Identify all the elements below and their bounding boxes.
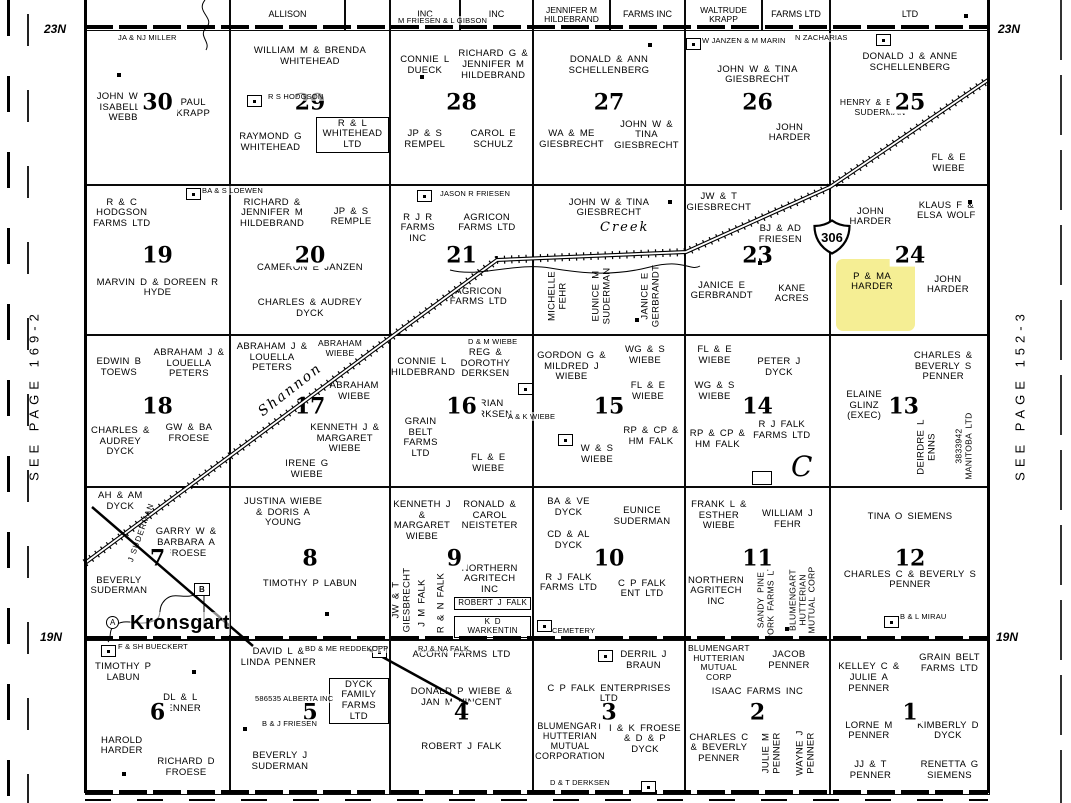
owner-callout-label: D & M WIEBE [468,337,517,346]
parcel-owner-label: JACOB PENNER [758,650,821,671]
parcel-owner-label: ABRAHAM WIEBE [310,339,370,358]
parcel-owner-label: DONALD & ANN SCHELLENBERG [546,55,672,76]
building-marker [101,645,116,657]
building-marker [785,627,789,631]
parcel-owner-label: EUNICE SUDERMAN [606,506,678,527]
parcel-owner-label: JANICE E GERBRANDT [640,257,661,335]
parcel-owner-label: NORTHERN AGRITECH INC [686,576,746,608]
parcel-owner-label: I & K FROESE & D & P DYCK [609,724,681,756]
parcel-owner-label: JANICE E GERBRANDT [686,281,758,302]
parcel-owner-label: LORNE M PENNER [831,721,907,742]
section-4: ACORN FARMS LTDDONALD P WIEBE & JAN M VI… [390,640,533,795]
owner-callout-label: D & T DERKSEN [550,778,610,787]
parcel-owner-label: R J FALK FARMS LTD [749,420,815,441]
parcel-owner-label: IRENE G WIEBE [272,459,342,480]
section-number: 10 [589,548,630,570]
parcel-owner-label: R & N FALK [436,568,447,638]
building-marker [686,38,701,50]
owner-callout-label: F & SH BUECKERT [118,642,188,651]
building-marker [558,434,573,446]
owner-callout-label: R S HODGSON [268,92,324,101]
parcel-owner-label: JOHN HARDER [758,123,822,144]
section-number: 13 [883,395,924,417]
parcel-owner-label: 3833942 MANITOBA LTD [954,410,973,482]
parcel-owner-label: TINA O SIEMENS [844,512,977,523]
building-marker [122,772,126,776]
parcel-owner-label: ABRAHAM WIEBE [323,381,386,402]
highway-number: 306 [812,230,852,245]
page-ref-right: SEE PAGE 152-3 [1013,309,1028,481]
township-line-19n [85,636,988,640]
section-19: R & C HODGSON FARMS LTDMARVIN D & DOREEN… [85,185,230,335]
section-13: ELAINE GLINZ (EXEC)CHARLES & BEVERLY S P… [830,335,990,487]
section-17: ABRAHAM J & LOUELLA PETERSABRAHAM WIEBEA… [230,335,390,487]
section-27: DONALD & ANN SCHELLENBERGWA & ME GIESBRE… [533,30,685,185]
building-marker [641,781,656,793]
owner-callout-label: BD & ME REDDEKOPP [305,644,388,653]
building-marker [537,620,552,632]
section-24: JOHN HARDERKLAUS F & ELSA WOLFP & MA HAR… [830,185,990,335]
parcel-owner-label: WG & S WIEBE [612,345,678,366]
owner-callout-label: M FRIESEN & L GIBSON [398,16,487,25]
parcel-owner-label: PETER J DYCK [743,357,815,378]
township-marker: 19N [40,630,62,644]
map-frame-left [84,0,87,793]
parcel-owner-label: RICHARD D FROESE [149,757,223,778]
parcel-owner-label: W & S WIEBE [573,444,621,465]
plat-map-page: JOHN W & ISABELLA WEBBPAUL KRAPP30WILLIA… [0,0,1071,803]
building-marker [325,612,329,616]
section-1: KELLEY C & JULIE A PENNERGRAIN BELT FARM… [830,640,990,795]
parcel-owner-label: MARVIN D & DOREEN R HYDE [92,278,224,299]
margin-road-dashes-bottom [85,799,988,801]
parcel-owner-label: R & C HODGSON FARMS LTD [86,198,158,230]
parcel-owner-label: KENNETH J & MARGARET WIEBE [391,500,453,543]
parcel-owner-label: ABRAHAM J & LOUELLA PETERS [152,348,226,380]
owner-callout-label: B & L MIRAU [900,612,947,621]
parcel-owner-label: WAYNE J PENNER [795,718,816,788]
section-11: FRANK L & ESTHER WIEBEWILLIAM J FEHRNORT… [685,487,830,640]
parcel-owner-label: KIMBERLY D DYCK [910,721,986,742]
parcel-owner-label: WA & ME GIESBRECHT [534,129,609,150]
section-number: 16 [441,395,482,417]
section-number: 14 [737,395,778,417]
parcel-owner-label: CONNIE L DUECK [394,55,456,76]
parcel-owner-label: GORDON G & MILDRED J WIEBE [534,351,609,383]
section-5: DAVID L & LINDA PENNERDYCK FAMILY FARMS … [230,640,390,795]
section-16: CONNIE L HILDEBRANDREG & DOROTHY DERKSEN… [390,335,533,487]
parcel-owner-label: P & MA HARDER [837,272,907,293]
parcel-owner-label: WG & S WIEBE [686,381,743,402]
building-marker [192,670,196,674]
parcel-owner-label: MICHELLE FEHR [547,260,568,332]
building-marker [420,75,424,79]
section-25: DONALD J & ANNE SCHELLENBERGHENRY & EUNI… [830,30,990,185]
section-30: JOHN W & ISABELLA WEBBPAUL KRAPP30 [85,30,230,185]
parcel-owner-label: KELLEY C & JULIE A PENNER [831,662,907,694]
parcel-owner-label: JUSTINA WIEBE & DORIS A YOUNG [244,497,323,529]
parcel-owner-label: EDWIN B TOEWS [86,357,152,378]
parcel-owner-label: CONNIE L HILDEBRAND [391,357,453,378]
parcel-owner-label: BEVERLY J SUDERMAN [237,751,322,772]
highway-306-shield: 306 [812,219,852,256]
building-marker [668,200,672,204]
section-number: 7 [145,548,170,570]
section-9: KENNETH J & MARGARET WIEBERONALD & CAROL… [390,487,533,640]
map-frame-right [987,0,990,793]
section-23: JW & T GIESBRECHTBJ & AD FRIESENJANICE E… [685,185,830,335]
section-number: 4 [449,701,474,723]
parcel-owner-label: FL & E WIEBE [913,153,984,174]
township-marker: 23N [998,22,1020,36]
parcel-owner-label: CHARLES & AUDREY DYCK [86,426,155,458]
section-number: 24 [890,244,931,266]
parcel-owner-label: J M FALK [418,568,429,638]
owner-callout-label: 586535 ALBERTA INC [255,694,333,703]
section-number: 30 [137,91,178,113]
parcel-owner-label: R J R FARMS INC [391,213,445,245]
building-marker [758,261,762,265]
parcel-owner-label: ROBERT J FALK [454,597,531,610]
section-number: 6 [145,701,170,723]
section-3: DERRIL J BRAUNC P FALK ENTERPRISES LTDBL… [533,640,685,795]
parcel-owner-label: DYCK FAMILY FARMS LTD [329,678,389,725]
section-18: EDWIN B TOEWSABRAHAM J & LOUELLA PETERSC… [85,335,230,487]
highlighted-parcel [836,259,915,332]
parcel-owner-label: RICHARD & JENNIFER M HILDEBRAND [231,198,313,230]
town-name-label: Kronsgart [130,612,230,635]
parcel-owner-label: WILLIAM M & BRENDA WHITEHEAD [239,46,381,67]
section-number: 12 [890,548,931,570]
parcel-owner-label: JOHN W & TINA GIESBRECHT [546,198,672,219]
parcel-owner-label: RAYMOND G WHITEHEAD [231,132,310,153]
section-number: 15 [589,395,630,417]
owner-callout-label: W JANZEN & M MARIN [702,36,786,45]
section-21: R J R FARMS INCAGRICON FARMS LTDAGRICON … [390,185,533,335]
parcel-owner-label: BLUMENGART HUTTERIAN MUTUAL CORPORATION [534,721,606,761]
parcel-owner-label: WILLIAM J FEHR [752,509,824,530]
section-number: 3 [596,701,621,723]
township-line-23n [85,25,988,29]
parcel-owner-label: ROBERT J FALK [405,742,518,753]
section-number: 1 [897,701,922,723]
parcel-owner-label: JULIE M PENNER [761,718,782,788]
parcel-owner-label: CHARLES & BEVERLY S PENNER [901,351,986,383]
section-number: 17 [290,395,331,417]
parcel-owner-label: HAROLD HARDER [89,736,155,757]
margin-road-dashes-left [7,0,10,803]
margin-road-dashes-right [1060,0,1062,803]
section-number: 26 [737,91,778,113]
owner-callout-label: JASON R FRIESEN [440,189,510,198]
parcel-owner-label: JOHN W & TINA GIESBRECHT [695,65,821,86]
building-marker [243,727,247,731]
parcel-owner-label: RICHARD G & JENNIFER M HILDEBRAND [457,49,529,81]
parcel-owner-label: DERRIL J BRAUN [609,650,678,671]
building-marker [968,200,972,204]
section-15: GORDON G & MILDRED J WIEBEWG & S WIEBEFL… [533,335,685,487]
parcel-owner-label: KANE ACRES [760,284,823,305]
section-number: 27 [589,91,630,113]
section-number: 2 [745,701,770,723]
parcel-owner-label: BLUMENGART HUTTERIAN MUTUAL CORP [789,557,818,643]
section-number: 25 [890,91,931,113]
creek-name-label: Creek [600,220,649,235]
parcel-owner-label: FRANK L & ESTHER WIEBE [686,500,752,532]
parcel-owner-label: C P FALK ENT LTD [606,579,678,600]
section-20: RICHARD & JENNIFER M HILDEBRANDJP & S RE… [230,185,390,335]
parcel-owner-label: BEVERLY SUDERMAN [86,576,152,597]
building-b-marker: B [194,583,210,596]
section-6: TIMOTHY P LABUNDL & L PENNERHAROLD HARDE… [85,640,230,795]
owner-callout-label: BA & S LOEWEN [202,186,263,195]
section-number: 20 [290,244,331,266]
owner-callout-label: JA & NJ MILLER [118,33,177,42]
section-29: WILLIAM M & BRENDA WHITEHEADRAYMOND G WH… [230,30,390,185]
page-ref-left: SEE PAGE 169-2 [27,309,42,481]
building-marker [884,616,899,628]
parcel-owner-label: TIMOTHY P LABUN [86,662,160,683]
parcel-owner-label: JP & S REMPLE [318,207,384,228]
parcel-owner-label: RP & CP & HM FALK [686,429,749,450]
parcel-owner-label: FL & E WIEBE [686,345,743,366]
parcel-owner-label: FL & E WIEBE [456,453,521,474]
owner-callout-label: N ZACHARIAS [795,33,848,42]
owner-callout-label: RJ & NA FALK [418,644,469,653]
parcel-owner-label: AGRICON FARMS LTD [447,213,526,234]
building-marker [117,73,121,77]
section-number: 19 [137,244,178,266]
building-outline-marker [752,471,772,485]
parcel-owner-label: JOHN W & TINA GIESBRECHT [609,120,684,152]
building-marker [635,318,639,322]
map-bottom-line [85,790,988,794]
parcel-owner-label: EUNICE M SUDERMAN [591,257,612,335]
building-marker [598,650,613,662]
parcel-owner-label: JJ & T PENNER [837,760,903,781]
parcel-owner-label: CHARLES C & BEVERLY PENNER [686,733,752,765]
section-number: 8 [297,548,322,570]
parcel-owner-label: R J FALK FARMS LTD [537,573,600,594]
parcel-owner-label: K D WARKENTIN [454,616,531,638]
building-marker [247,95,262,107]
parcel-owner-label: CHARLES & AUDREY DYCK [244,298,377,319]
parcel-owner-label: RONALD & CAROL NEISTETER [453,500,526,532]
section-22: JOHN W & TINA GIESBRECHTMICHELLE FEHREUN… [533,185,685,335]
parcel-owner-label: RENETTA G SIEMENS [913,760,986,781]
building-marker [417,190,432,202]
parcel-owner-label: ISAAC FARMS INC [700,687,814,698]
building-marker [186,188,201,200]
township-marker: 23N [44,22,66,36]
section-26: JOHN W & TINA GIESBRECHTJOHN HARDER26 [685,30,830,185]
section-10: BA & VE DYCKCD & AL DYCKEUNICE SUDERMANR… [533,487,685,640]
section-8: JUSTINA WIEBE & DORIS A YOUNGTIMOTHY P L… [230,487,390,640]
parcel-owner-label: GRAIN BELT FARMS LTD [394,417,448,460]
building-marker [876,34,891,46]
church-symbol: C [791,450,812,483]
parcel-owner-label: CHARLES C & BEVERLY S PENNER [844,570,977,591]
parcel-owner-label: KENNETH J & MARGARET WIEBE [304,423,386,455]
parcel-owner-label: RP & CP & HM FALK [621,426,681,447]
parcel-owner-label: GRAIN BELT FARMS LTD [916,653,982,674]
section-2: BLUMENGART HUTTERIAN MUTUAL CORPJACOB PE… [685,640,830,795]
parcel-owner-label: R & L WHITEHEAD LTD [316,117,388,153]
section-number: 18 [137,395,178,417]
owner-callout-label: A & K WIEBE [508,412,555,421]
building-marker [964,14,968,18]
parcel-owner-label: AGRICON FARMS LTD [436,287,521,308]
owner-callout-label: B & J FRIESEN [262,719,317,728]
parcel-owner-label: BA & VE DYCK [537,497,600,518]
parcel-owner-label: JW & T GIESBRECHT [392,563,413,637]
section-number: 21 [441,244,482,266]
parcel-owner-label: BLUMENGART HUTTERIAN MUTUAL CORP [686,644,752,682]
building-marker [648,43,652,47]
parcel-owner-label: JP & S REMPEL [394,129,456,150]
parcel-owner-label: AH & AM DYCK [90,491,150,512]
parcel-owner-label: CAROL E SCHULZ [457,129,529,150]
parcel-owner-label: DEIRDRE L ENNS [917,413,938,481]
parcel-owner-label: TIMOTHY P LABUN [247,579,373,590]
section-number: 9 [442,548,467,570]
section-number: 11 [737,548,778,570]
section-number: 28 [441,91,482,113]
parcel-owner-label: REG & DOROTHY DERKSEN [453,348,518,380]
cemetery-label: CEMETERY [552,626,595,635]
parcel-owner-label: ABRAHAM J & LOUELLA PETERS [231,342,313,374]
parcel-owner-label: JOHN HARDER [913,275,983,296]
parcel-owner-label: GW & BA FROESE [155,423,224,444]
township-marker: 19N [996,630,1018,644]
parcel-owner-label: JW & T GIESBRECHT [686,192,752,213]
section-28: CONNIE L DUECKRICHARD G & JENNIFER M HIL… [390,30,533,185]
building-marker [518,383,533,395]
parcel-owner-label: DONALD J & ANNE SCHELLENBERG [840,52,979,73]
